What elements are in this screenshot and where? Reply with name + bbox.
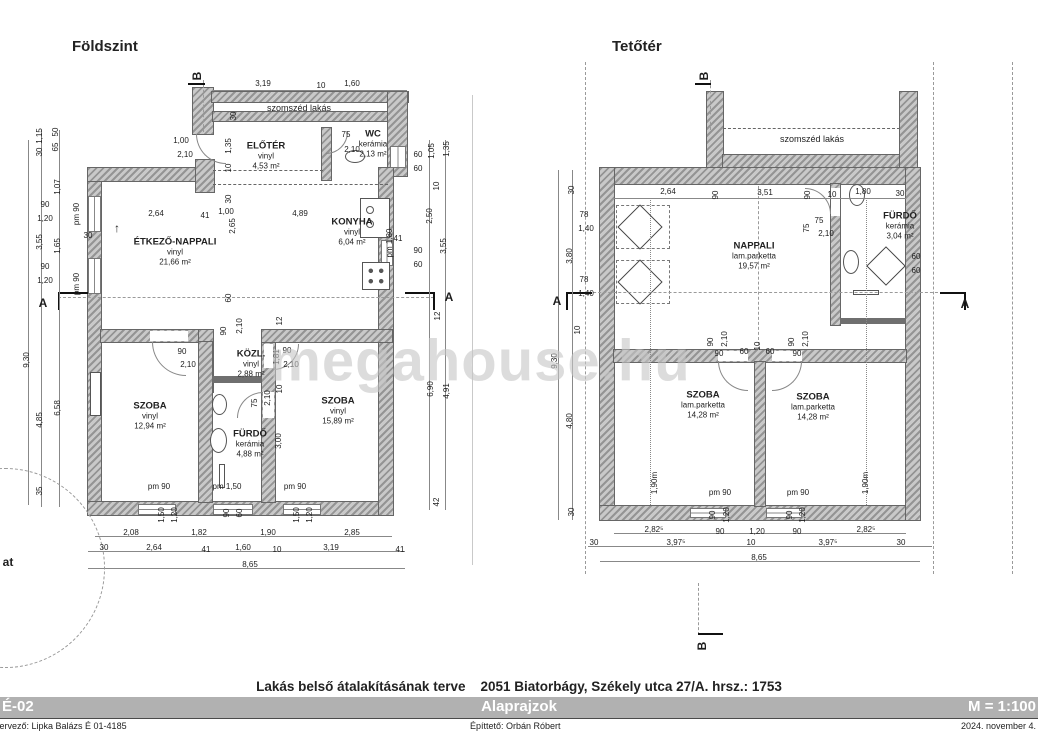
eaves-line	[1012, 62, 1013, 574]
dim-label: 60	[414, 151, 423, 159]
section-marker: A	[961, 298, 970, 310]
room-name: NAPPALI	[732, 241, 776, 252]
neighbor-flat-label-attic: szomszéd lakás	[780, 134, 844, 144]
window	[213, 504, 253, 515]
dim-label: 60	[414, 165, 423, 173]
dim-label: 8,65	[242, 561, 258, 569]
sheet-scale: M = 1:100	[968, 698, 1036, 715]
dim-label: 1,15	[36, 128, 44, 144]
room-area: 14,28 m²	[681, 411, 725, 421]
dim-label: 10	[433, 182, 441, 191]
door-swing	[718, 361, 748, 391]
wall-thin	[840, 318, 906, 324]
section-line-b	[203, 80, 204, 132]
headroom-line	[866, 200, 867, 505]
section-bracket	[188, 83, 205, 85]
dim-label: 1,60	[344, 80, 360, 88]
room-name: KÖZL.	[237, 349, 266, 360]
dim-line	[445, 140, 446, 510]
roof-window-icon	[866, 246, 906, 286]
room-name: SZOBA	[321, 396, 354, 407]
dim-label: 90	[41, 201, 50, 209]
dim-label: 90	[793, 528, 802, 536]
dim-label: 1,90	[260, 529, 276, 537]
dim-label: 1,00	[173, 137, 189, 145]
window	[766, 508, 802, 518]
eaves-line	[933, 62, 934, 574]
dim-label: 90	[788, 338, 796, 347]
dim-label: 9,30	[23, 352, 31, 368]
sheet-name: Alaprajzok	[0, 698, 1038, 715]
dim-label: 1,35	[225, 138, 233, 154]
room-area: 6,04 m²	[331, 238, 372, 248]
room-label: SZOBAlam.parketta14,28 m²	[791, 392, 835, 423]
room-label: SZOBAvinyl12,94 m²	[133, 401, 166, 432]
section-marker: at	[3, 556, 14, 568]
dim-label: 3,00	[275, 433, 283, 449]
dim-label: pm 90	[284, 483, 306, 491]
wall	[88, 168, 200, 181]
dim-label: 3,97⁵	[667, 539, 686, 547]
dim-label: 1,20	[171, 507, 179, 523]
dim-label: 41	[396, 546, 405, 554]
boundary-line	[472, 95, 473, 565]
dim-label: 1,20	[723, 507, 731, 523]
dim-label: 90	[793, 350, 802, 358]
dim-label: 4,91	[443, 383, 451, 399]
section-line-b	[710, 80, 711, 130]
dim-label: 2,50	[426, 208, 434, 224]
dim-label: 60	[766, 348, 775, 356]
dim-label: 3,19	[323, 544, 339, 552]
dim-label: 90	[414, 247, 423, 255]
dim-label: 90	[223, 509, 231, 518]
room-name: ÉTKEZŐ-NAPPALI	[134, 237, 217, 248]
window	[390, 146, 406, 168]
dim-label: 60	[236, 509, 244, 518]
room-finish: vinyl	[133, 412, 166, 422]
room-area: 14,28 m²	[791, 413, 835, 423]
room-label: SZOBAlam.parketta14,28 m²	[681, 390, 725, 421]
dim-label: 2,10	[721, 331, 729, 347]
dim-label: 90	[178, 348, 187, 356]
dim-label: 1,00	[218, 208, 234, 216]
room-name: SZOBA	[133, 401, 166, 412]
section-marker: A	[445, 291, 454, 303]
room-area: 3,04 m²	[883, 232, 917, 242]
dim-label: 1,50	[158, 507, 166, 523]
dim-label: 10	[276, 385, 284, 394]
room-area: 4,88 m²	[233, 450, 267, 460]
room-area: 19,57 m²	[732, 262, 776, 272]
dim-label: 3,97⁵	[819, 539, 838, 547]
room-label: WCkerámia2,13 m²	[359, 129, 387, 160]
room-finish: lam.parketta	[681, 401, 725, 411]
wall	[600, 506, 920, 520]
dim-label: 4,89	[292, 210, 308, 218]
dim-line	[572, 170, 573, 520]
dim-label: 2,10	[283, 361, 299, 369]
wall	[199, 342, 212, 502]
wall	[614, 350, 906, 362]
room-label: FÜRDŐkerámia3,04 m²	[883, 211, 917, 242]
door-opening	[150, 331, 188, 341]
wall	[196, 160, 214, 192]
section-bracket	[695, 83, 711, 85]
dim-label: 1,80	[855, 188, 871, 196]
wall	[600, 168, 920, 184]
room-area: 12,94 m²	[133, 422, 166, 432]
dim-label: 10	[574, 326, 582, 335]
project-address: 2051 Biatorbágy, Székely utca 27/A. hrsz…	[481, 679, 782, 694]
dim-label: 6,58	[54, 400, 62, 416]
attic-title: Tetőtér	[612, 38, 662, 55]
room-area: 2,88 m²	[237, 370, 266, 380]
dim-label: 78	[580, 276, 589, 284]
dim-label: pm 90	[73, 203, 81, 225]
room-name: FÜRDŐ	[233, 429, 267, 440]
dim-label: 10	[317, 82, 326, 90]
dim-label: 30	[568, 186, 576, 195]
dim-label: 90	[220, 327, 228, 336]
dim-label: 90	[712, 191, 720, 200]
dim-label: 60	[740, 348, 749, 356]
room-finish: lam.parketta	[732, 252, 776, 262]
room-finish: kerámia	[233, 440, 267, 450]
dim-label: 30	[568, 508, 576, 517]
eaves-line	[585, 62, 586, 574]
section-marker: A	[39, 297, 48, 309]
dim-label: 30	[897, 539, 906, 547]
stove-icon	[362, 262, 390, 290]
dim-label: 42	[433, 498, 441, 507]
dim-label: 1,20	[306, 507, 314, 523]
dashed-line	[213, 184, 388, 185]
dim-label: 30	[100, 544, 109, 552]
dim-label: 1,35	[443, 141, 451, 157]
dim-label: 90	[715, 350, 724, 358]
dim-label: 1,90m	[651, 472, 659, 494]
wall	[755, 362, 765, 506]
wall	[600, 168, 614, 520]
room-finish: vinyl	[247, 152, 286, 162]
washbasin-icon	[843, 250, 859, 274]
dim-label: pm 90	[787, 489, 809, 497]
ground-floor-title: Földszint	[72, 38, 138, 55]
dashed-line	[723, 128, 900, 129]
dim-label: 2,10	[236, 318, 244, 334]
dim-label: pm 90	[148, 483, 170, 491]
washbasin-icon	[210, 428, 227, 453]
dim-line	[28, 140, 29, 505]
dim-label: 10	[273, 546, 282, 554]
room-label: SZOBAvinyl15,89 m²	[321, 396, 354, 427]
dim-label: 90	[786, 511, 794, 520]
dim-label: pm 90	[709, 489, 731, 497]
dim-label: 90	[716, 528, 725, 536]
dim-label: 90	[709, 511, 717, 520]
dim-label: 10	[754, 342, 762, 351]
dim-label: 75	[815, 217, 824, 225]
dim-label: 30	[84, 232, 93, 240]
room-label: KÖZL.vinyl2,88 m²	[237, 349, 266, 380]
room-name: KONYHA	[331, 217, 372, 228]
neighbor-flat-label-ground: szomszéd lakás	[267, 103, 331, 113]
section-line-a	[58, 297, 434, 298]
window	[88, 196, 101, 232]
window	[88, 258, 101, 294]
client-credit: Építtető: Orbán Róbert	[470, 721, 561, 731]
room-label: FÜRDŐkerámia4,88 m²	[233, 429, 267, 460]
room-name: SZOBA	[791, 392, 835, 403]
window	[283, 504, 321, 515]
dim-label: 75	[251, 399, 259, 408]
room-label: ELŐTÉRvinyl4,53 m²	[247, 141, 286, 172]
dim-label: 60	[225, 294, 233, 303]
room-finish: vinyl	[237, 360, 266, 370]
dim-label: 1,07	[54, 179, 62, 195]
dim-label: 2,10	[177, 151, 193, 159]
dim-label: 2,64	[148, 210, 164, 218]
dim-label: pm 1,80	[386, 229, 394, 258]
dim-label: 2,10	[818, 230, 834, 238]
dim-label: 60	[912, 253, 921, 261]
room-label: ÉTKEZŐ-NAPPALIvinyl21,66 m²	[134, 237, 217, 268]
dim-label: 60	[414, 261, 423, 269]
dim-label: 60	[912, 267, 921, 275]
wall	[900, 92, 917, 170]
wall-niche	[90, 372, 101, 416]
dim-line	[558, 170, 559, 520]
dim-label: 6,90	[427, 381, 435, 397]
dim-label: 1,81	[273, 349, 281, 365]
dim-line	[213, 90, 407, 91]
dim-line	[614, 198, 906, 199]
project-title: Lakás belső átalakításának terve 2051 Bi…	[0, 679, 1038, 694]
dim-label: 75	[342, 131, 351, 139]
dim-label: 3,19	[255, 80, 271, 88]
room-finish: vinyl	[331, 228, 372, 238]
dim-label: 8,65	[751, 554, 767, 562]
dim-label: 12	[434, 312, 442, 321]
title-bar: É-02 Alaprajzok M = 1:100	[0, 697, 1038, 719]
dim-label: 2,85	[344, 529, 360, 537]
wall	[212, 92, 408, 102]
dim-label: 2,10	[180, 361, 196, 369]
dim-label: 9,30	[551, 353, 559, 369]
section-marker: ↑	[114, 222, 120, 234]
room-name: SZOBA	[681, 390, 725, 401]
dim-label: 2,10	[264, 390, 272, 406]
dim-label: 2,64	[146, 544, 162, 552]
dim-line	[429, 140, 430, 510]
dim-label: 65	[52, 143, 60, 152]
dim-label: 1,82	[191, 529, 207, 537]
wall	[213, 112, 390, 121]
section-marker: B	[698, 72, 710, 81]
dim-label: 1,05	[428, 143, 436, 159]
dim-label: 41	[394, 235, 403, 243]
dim-line	[588, 546, 932, 547]
dim-label: 3,51	[757, 189, 773, 197]
dim-line	[41, 130, 42, 507]
dim-label: 41	[202, 546, 211, 554]
room-finish: kerámia	[359, 140, 387, 150]
dim-label: 2,82⁵	[857, 526, 876, 534]
wall	[262, 330, 392, 342]
dim-label: 2,10	[802, 331, 810, 347]
room-area: 15,89 m²	[321, 417, 354, 427]
room-area: 2,13 m²	[359, 150, 387, 160]
dim-label: 75	[803, 224, 811, 233]
dim-label: 90	[707, 338, 715, 347]
dim-label: 1,20	[37, 277, 53, 285]
dim-label: 1,65	[54, 238, 62, 254]
room-finish: kerámia	[883, 222, 917, 232]
dim-label: 78	[580, 211, 589, 219]
room-area: 4,53 m²	[247, 162, 286, 172]
dim-label: 90	[41, 263, 50, 271]
dim-label: 3,55	[440, 238, 448, 254]
dim-label: 4,80	[566, 413, 574, 429]
dim-label: 2,10	[344, 146, 360, 154]
dim-label: 30	[36, 148, 44, 157]
dim-label: 2,08	[123, 529, 139, 537]
dim-label: 3,55	[36, 234, 44, 250]
dim-label: pm 90	[73, 273, 81, 295]
dim-label: 2,64	[660, 188, 676, 196]
toilet-icon	[212, 394, 227, 415]
room-finish: vinyl	[134, 248, 217, 258]
section-marker: B	[696, 642, 708, 651]
dim-label: 1,60	[235, 544, 251, 552]
project-title-text: Lakás belső átalakításának terve	[256, 679, 465, 694]
dim-label: 1,20	[37, 215, 53, 223]
section-line-a	[568, 292, 948, 293]
dim-label: 1,90m	[862, 472, 870, 494]
dim-label: 90	[283, 347, 292, 355]
room-name: WC	[359, 129, 387, 140]
dim-label: 30	[225, 195, 233, 204]
section-marker: B	[191, 72, 203, 81]
room-name: FÜRDŐ	[883, 211, 917, 222]
section-line-b	[698, 583, 699, 635]
dim-label: 1,20	[749, 528, 765, 536]
dim-label: 4,85	[36, 412, 44, 428]
section-marker: A	[553, 295, 562, 307]
dim-label: 90	[804, 191, 812, 200]
dim-label: 1,50	[293, 507, 301, 523]
dim-label: 10	[828, 191, 837, 199]
floor-plan-sheet: Földszint Tetőtér B3,19101,60301,002,101…	[0, 0, 1038, 743]
dim-label: 10	[747, 539, 756, 547]
wall	[723, 155, 902, 167]
kitchen-sink-icon	[366, 206, 374, 214]
dim-label: pm 1,50	[213, 483, 242, 491]
dim-label: 12	[276, 317, 284, 326]
room-name: ELŐTÉR	[247, 141, 286, 152]
designer-credit: tervező: Lipka Balázs É 01-4185	[0, 721, 127, 731]
dim-label: 30	[590, 539, 599, 547]
dim-label: 10	[225, 164, 233, 173]
dim-label: 3,80	[566, 248, 574, 264]
dim-label: 1,40	[578, 290, 594, 298]
section-bracket	[698, 633, 723, 635]
dim-label: 1,40	[578, 225, 594, 233]
room-label: NAPPALIlam.parketta19,57 m²	[732, 241, 776, 272]
door-swing	[772, 361, 802, 391]
dim-label: 50	[52, 128, 60, 137]
dim-label: 35	[36, 487, 44, 496]
dim-label: 2,82⁵	[645, 526, 664, 534]
sheet-date: 2024. november 4.	[961, 721, 1036, 731]
dim-label: 30	[896, 190, 905, 198]
dim-label: 41	[201, 212, 210, 220]
room-label: KONYHAvinyl6,04 m²	[331, 217, 372, 248]
dim-label: 30	[230, 112, 238, 121]
room-area: 21,66 m²	[134, 258, 217, 268]
dim-label: 2,65	[229, 218, 237, 234]
section-bracket	[405, 292, 435, 310]
dim-label: 1,20	[799, 507, 807, 523]
headroom-line	[650, 200, 651, 505]
room-finish: lam.parketta	[791, 403, 835, 413]
room-finish: vinyl	[321, 407, 354, 417]
